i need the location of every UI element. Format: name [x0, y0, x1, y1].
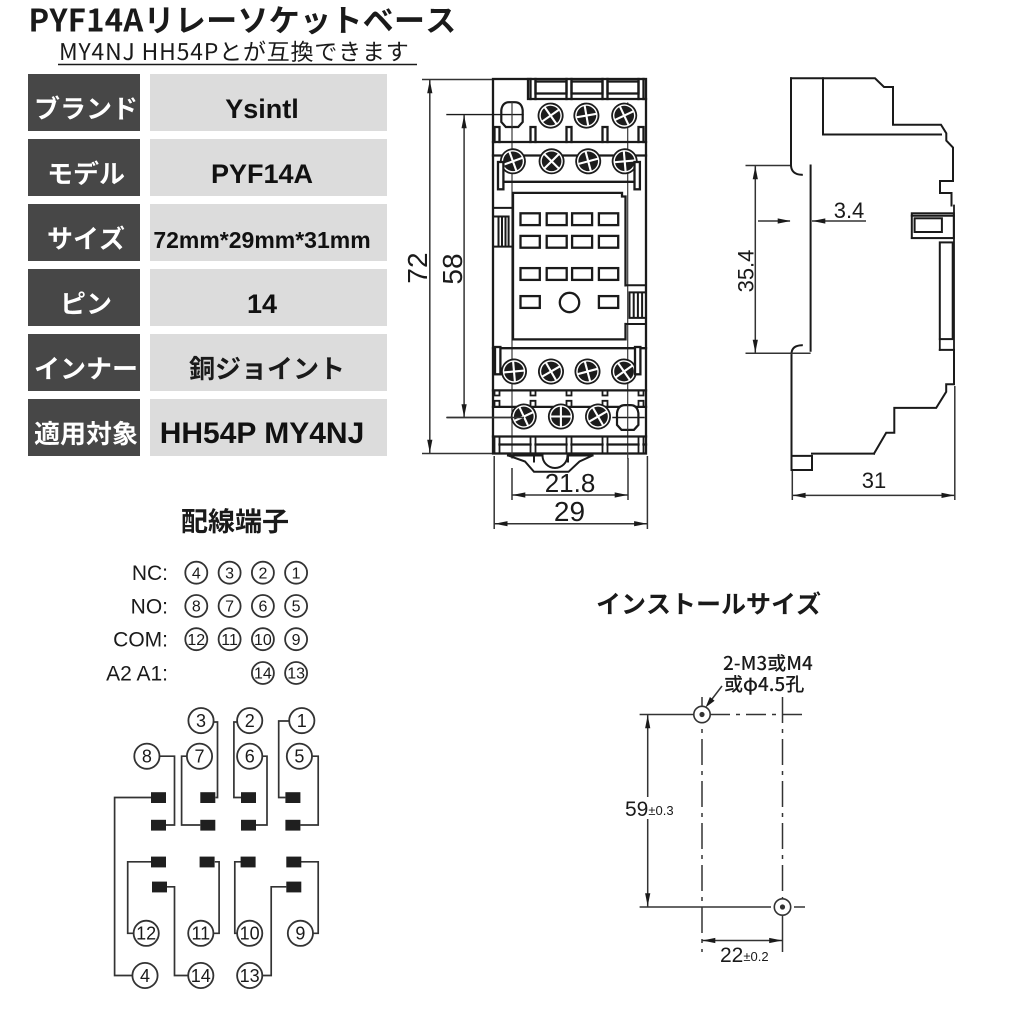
- svg-text:11: 11: [221, 632, 238, 649]
- svg-text:A2 A1:: A2 A1:: [106, 662, 168, 685]
- svg-text:11: 11: [191, 924, 210, 944]
- svg-text:22±0.2: 22±0.2: [720, 944, 769, 967]
- svg-text:13: 13: [240, 966, 260, 986]
- svg-text:COM:: COM:: [113, 628, 168, 651]
- svg-text:29: 29: [554, 496, 585, 527]
- svg-text:10: 10: [254, 632, 272, 649]
- svg-text:NC:: NC:: [132, 562, 168, 585]
- svg-text:35.4: 35.4: [734, 250, 759, 293]
- svg-text:14: 14: [254, 666, 272, 683]
- svg-text:9: 9: [292, 632, 301, 649]
- svg-text:4: 4: [140, 966, 150, 986]
- svg-text:10: 10: [240, 924, 260, 944]
- svg-text:6: 6: [245, 747, 255, 767]
- svg-text:2: 2: [245, 711, 255, 731]
- svg-text:31: 31: [862, 468, 886, 493]
- svg-text:12: 12: [136, 924, 156, 944]
- svg-text:2: 2: [258, 565, 267, 582]
- svg-text:58: 58: [437, 253, 468, 284]
- svg-text:4: 4: [192, 565, 201, 582]
- svg-text:21.8: 21.8: [545, 468, 596, 498]
- svg-text:9: 9: [295, 924, 305, 944]
- svg-text:3: 3: [196, 711, 206, 731]
- svg-text:HH54P MY4NJ: HH54P MY4NJ: [160, 417, 365, 450]
- svg-text:3: 3: [225, 565, 234, 582]
- svg-text:14: 14: [247, 289, 277, 319]
- svg-text:8: 8: [192, 599, 201, 616]
- svg-text:1: 1: [297, 711, 307, 731]
- svg-text:72: 72: [402, 252, 433, 283]
- svg-text:72mm*29mm*31mm: 72mm*29mm*31mm: [153, 227, 370, 253]
- svg-text:6: 6: [258, 599, 267, 616]
- svg-text:5: 5: [292, 599, 301, 616]
- svg-text:7: 7: [225, 599, 234, 616]
- svg-text:14: 14: [191, 966, 211, 986]
- svg-text:7: 7: [194, 747, 204, 767]
- svg-text:13: 13: [287, 666, 305, 683]
- svg-text:NO:: NO:: [131, 595, 168, 618]
- svg-text:8: 8: [142, 747, 152, 767]
- svg-text:3.4: 3.4: [834, 198, 865, 223]
- svg-text:12: 12: [187, 632, 205, 649]
- svg-text:PYF14A: PYF14A: [211, 159, 313, 189]
- svg-text:Ysintl: Ysintl: [225, 94, 299, 124]
- svg-text:5: 5: [294, 747, 304, 767]
- svg-text:1: 1: [292, 565, 301, 582]
